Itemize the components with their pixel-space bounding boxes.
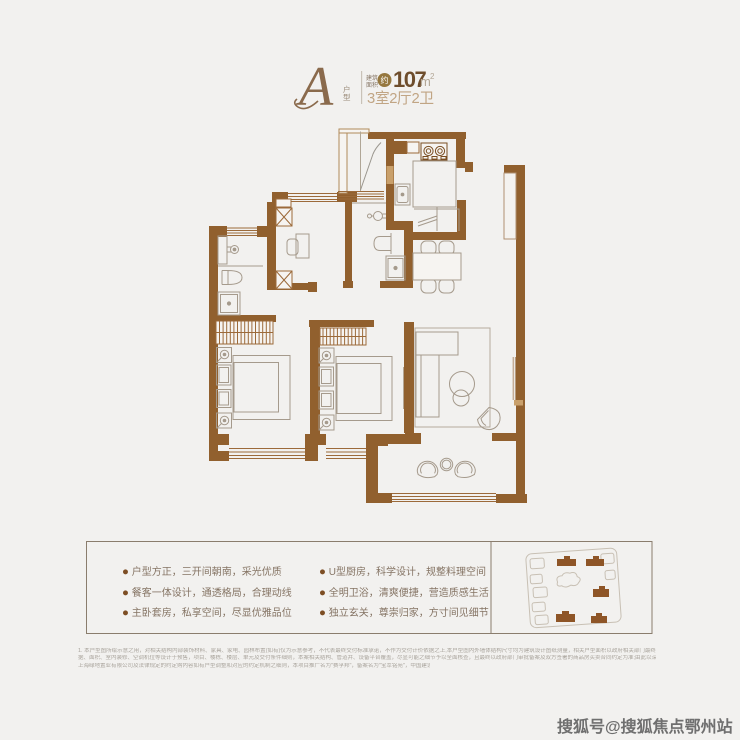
svg-text:建筑: 建筑 [366, 74, 378, 82]
svg-text:型: 型 [343, 93, 351, 102]
svg-text:约: 约 [381, 75, 389, 85]
svg-text:面积: 面积 [366, 81, 378, 89]
svg-text:3室2厅2卫: 3室2厅2卫 [367, 90, 434, 107]
svg-text:2: 2 [430, 72, 435, 81]
